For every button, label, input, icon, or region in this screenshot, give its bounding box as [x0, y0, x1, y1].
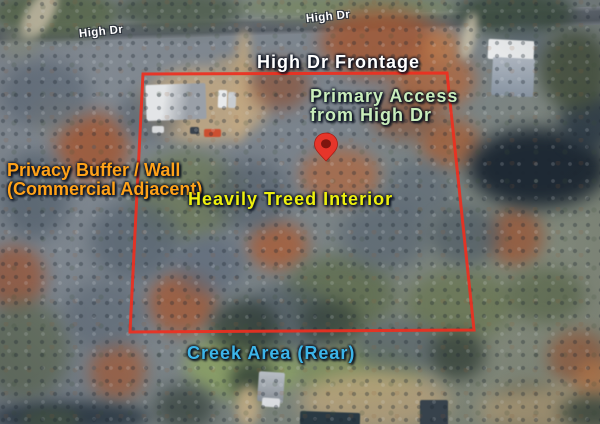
annotation-primary-access-line2: from High Dr: [310, 106, 458, 125]
annotation-creek-area-rear: Creek Area (Rear): [187, 344, 355, 363]
annotated-aerial-map: High Dr High Dr High Dr Frontage Primary…: [0, 0, 600, 424]
annotation-privacy-buffer-line1: Privacy Buffer / Wall: [7, 161, 202, 180]
annotation-high-dr-frontage: High Dr Frontage: [257, 53, 420, 72]
annotation-privacy-buffer-line2: (Commercial Adjacent): [7, 180, 202, 199]
annotation-primary-access: Primary Access from High Dr: [310, 87, 458, 125]
annotation-privacy-buffer: Privacy Buffer / Wall (Commercial Adjace…: [7, 161, 202, 199]
annotation-primary-access-line1: Primary Access: [310, 87, 458, 106]
annotation-heavily-treed-interior: Heavily Treed Interior: [188, 190, 393, 209]
location-pin-icon: [313, 132, 339, 162]
